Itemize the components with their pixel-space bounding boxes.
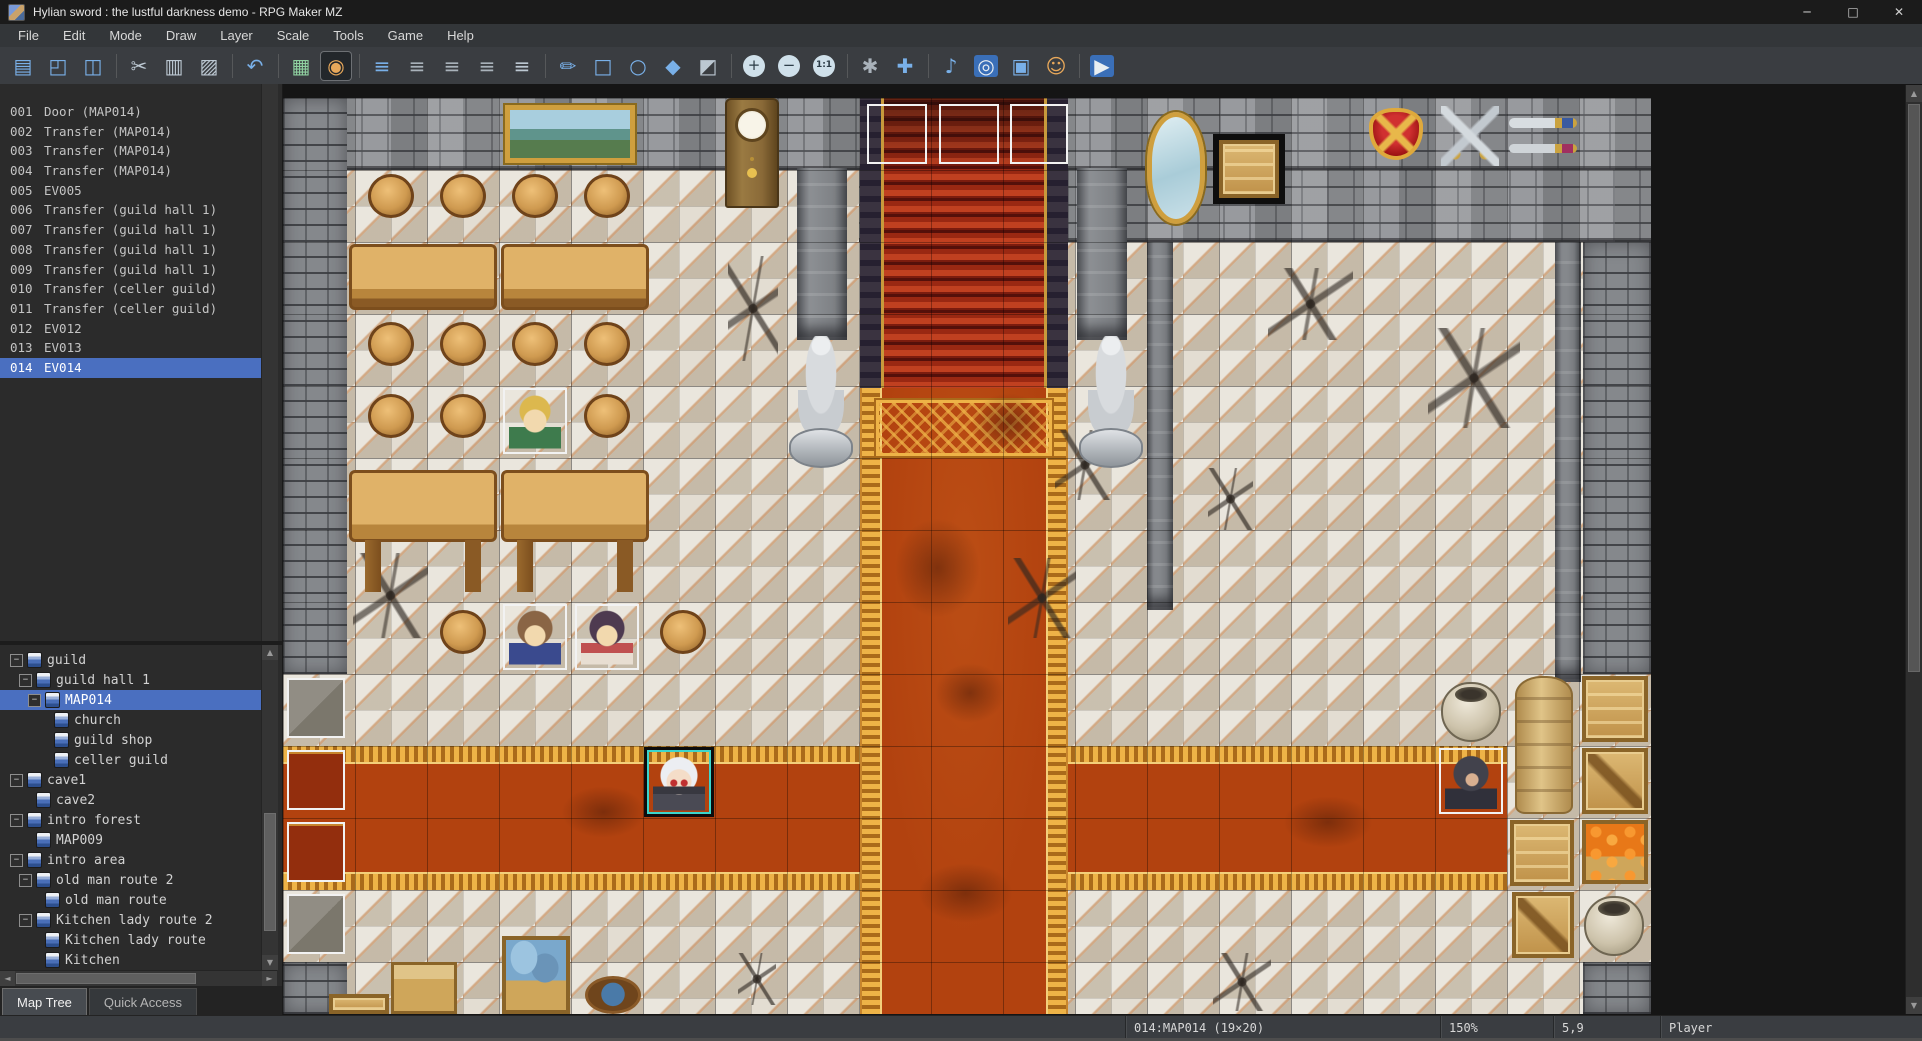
plugin-manager-button[interactable]: ✚ xyxy=(890,52,920,80)
map-file-icon xyxy=(36,872,51,888)
carpet-stain xyxy=(935,663,1005,723)
stool xyxy=(584,394,630,438)
carpet-stain xyxy=(1283,796,1373,848)
playtest-button[interactable]: ▶ xyxy=(1087,52,1117,80)
stool xyxy=(368,174,414,218)
scroll-thumb[interactable] xyxy=(264,813,276,931)
layer-auto-button[interactable]: ≡ xyxy=(367,52,397,80)
tab-quick-access[interactable]: Quick Access xyxy=(89,988,197,1015)
sound-test-icon: ♪ xyxy=(945,56,958,76)
layer-2-button[interactable]: ≡ xyxy=(437,52,467,80)
tree-item-old-man-route[interactable]: −old man route xyxy=(0,890,261,910)
crate xyxy=(1582,676,1648,742)
map-file-icon xyxy=(36,912,51,928)
window-controls: ─ □ ✕ xyxy=(1784,0,1922,24)
menu-edit[interactable]: Edit xyxy=(51,28,97,43)
event-searcher-icon: ◎ xyxy=(974,55,998,77)
layer-1-icon: ≡ xyxy=(409,56,426,76)
scroll-thumb[interactable] xyxy=(1908,104,1920,672)
status-mode: Player xyxy=(1660,1016,1922,1039)
layer-2-icon: ≡ xyxy=(444,56,461,76)
carrot-crate xyxy=(1582,820,1648,884)
maximize-button[interactable]: □ xyxy=(1830,0,1876,24)
floor-crack xyxy=(1208,468,1253,530)
event-item-008[interactable]: 008Transfer (guild hall 1) xyxy=(0,240,261,260)
layer-auto-icon: ≡ xyxy=(374,56,391,76)
map-file-icon xyxy=(36,792,51,808)
plugin-manager-icon: ✚ xyxy=(897,56,914,76)
save-project-icon: ◫ xyxy=(84,56,103,76)
stool xyxy=(584,322,630,366)
stool xyxy=(368,394,414,438)
stool xyxy=(512,174,558,218)
event-item-002[interactable]: 002Transfer (MAP014) xyxy=(0,122,261,142)
status-spacer xyxy=(0,1016,1125,1039)
scroll-thumb[interactable] xyxy=(16,973,196,984)
new-project-button[interactable]: ▤ xyxy=(8,52,38,80)
tree-item-kitchen-lady-route[interactable]: −Kitchen lady route xyxy=(0,930,261,950)
floor-crack xyxy=(728,256,778,361)
wood-chest xyxy=(391,962,457,1014)
cut-button[interactable]: ✂ xyxy=(124,52,154,80)
event-item-004[interactable]: 004Transfer (MAP014) xyxy=(0,161,261,181)
ellipse-tool-button[interactable]: ○ xyxy=(623,52,653,80)
map-tree-hscrollbar[interactable]: ◄ ► xyxy=(0,970,277,986)
tab-map-tree[interactable]: Map Tree xyxy=(2,988,87,1015)
map-mode-button[interactable]: ▦ xyxy=(286,52,316,80)
tree-item-map009[interactable]: −MAP009 xyxy=(0,830,261,850)
map-file-icon xyxy=(54,712,69,728)
toolbar-separator xyxy=(731,54,732,78)
sidebar: 001Door (MAP014)002Transfer (MAP014)003T… xyxy=(0,84,283,1015)
event-box[interactable] xyxy=(287,750,345,810)
map-file-icon xyxy=(45,692,60,708)
crate xyxy=(1510,820,1574,886)
event-item-011[interactable]: 011Transfer (celler guild) xyxy=(0,299,261,319)
toolbar: ▤◰◫✂▥▨↶▦◉≡≡≡≡≡✏□○◆◩+−1:1✱✚♪◎▣☺▶ xyxy=(0,47,1922,85)
statue-left xyxy=(787,336,855,468)
floor-crack xyxy=(1268,268,1353,340)
toolbar-separator xyxy=(116,54,117,78)
stool xyxy=(440,322,486,366)
water-bucket xyxy=(585,976,641,1014)
sound-test-button[interactable]: ♪ xyxy=(936,52,966,80)
grandfather-clock xyxy=(725,98,779,208)
map-file-icon xyxy=(45,892,60,908)
character-generator-icon: ☺ xyxy=(1046,56,1067,76)
event-item-005[interactable]: 005EV005 xyxy=(0,181,261,201)
event-box[interactable] xyxy=(1010,104,1068,164)
stool xyxy=(584,174,630,218)
crate xyxy=(1582,748,1648,814)
carpet-stain xyxy=(561,786,646,838)
status-map-info: 014:MAP014 (19×20) xyxy=(1125,1016,1440,1039)
scroll-up-icon[interactable]: ▲ xyxy=(1906,85,1922,102)
event-box[interactable] xyxy=(867,104,927,164)
floor-crack xyxy=(738,953,776,1005)
toolbar-separator xyxy=(232,54,233,78)
long-table xyxy=(349,470,497,596)
event-item-010[interactable]: 010Transfer (celler guild) xyxy=(0,279,261,299)
undo-button[interactable]: ↶ xyxy=(240,52,270,80)
scroll-left-icon[interactable]: ◄ xyxy=(0,971,15,986)
paste-icon: ▨ xyxy=(200,56,219,76)
new-project-icon: ▤ xyxy=(14,56,33,76)
scroll-up-icon[interactable]: ▲ xyxy=(262,645,278,660)
map-tree-vscrollbar[interactable]: ▲ ▼ xyxy=(261,645,278,970)
tree-item-kitchen[interactable]: −Kitchen xyxy=(0,950,261,970)
char-npc-dark xyxy=(581,606,633,668)
map-file-icon xyxy=(45,952,60,968)
tree-item-guild-shop[interactable]: −guild shop xyxy=(0,730,261,750)
tree-item-cave2[interactable]: −cave2 xyxy=(0,790,261,810)
status-coords: 5,9 xyxy=(1553,1016,1660,1039)
resource-manager-icon: ▣ xyxy=(1012,56,1031,76)
shadow-pen-tool-icon: ◩ xyxy=(699,56,718,76)
main-area: 001Door (MAP014)002Transfer (MAP014)003T… xyxy=(0,84,1922,1015)
tree-item-map014[interactable]: −MAP014 xyxy=(0,690,261,710)
event-item-003[interactable]: 003Transfer (MAP014) xyxy=(0,141,261,161)
char-hooded xyxy=(1445,750,1497,812)
event-item-001[interactable]: 001Door (MAP014) xyxy=(0,102,261,122)
sidebar-tabbar: Map TreeQuick Access xyxy=(0,986,282,1015)
event-item-014[interactable]: 014EV014 xyxy=(0,358,261,378)
long-table xyxy=(501,470,649,596)
event-box[interactable] xyxy=(287,678,345,738)
stool xyxy=(440,394,486,438)
database-button[interactable]: ✱ xyxy=(855,52,885,80)
cut-icon: ✂ xyxy=(131,56,148,76)
zoom-out-button[interactable]: − xyxy=(774,52,804,80)
paste-button[interactable]: ▨ xyxy=(194,52,224,80)
tree-expander-icon[interactable]: − xyxy=(10,774,23,787)
stool xyxy=(512,322,558,366)
tree-expander-icon[interactable]: − xyxy=(19,914,32,927)
map-file-icon xyxy=(27,812,42,828)
menu-help[interactable]: Help xyxy=(435,28,486,43)
char-hero xyxy=(509,390,561,452)
copy-button[interactable]: ▥ xyxy=(159,52,189,80)
small-crate xyxy=(329,994,389,1014)
scroll-right-icon[interactable]: ► xyxy=(262,971,277,986)
minimize-button[interactable]: ─ xyxy=(1784,0,1830,24)
pencil-tool-button[interactable]: ✏ xyxy=(553,52,583,80)
ellipse-tool-icon: ○ xyxy=(629,56,646,76)
wall-mirror xyxy=(1147,112,1205,224)
toolbar-separator xyxy=(359,54,360,78)
tree-expander-icon[interactable]: − xyxy=(10,654,23,667)
toolbar-separator xyxy=(928,54,929,78)
toolbar-separator xyxy=(847,54,848,78)
char-white-hair xyxy=(653,752,705,814)
event-item-012[interactable]: 012EV012 xyxy=(0,319,261,339)
tree-expander-icon[interactable]: − xyxy=(19,874,32,887)
tree-item-guild[interactable]: −guild xyxy=(0,650,261,670)
menu-scale[interactable]: Scale xyxy=(265,28,322,43)
tree-item-intro-area[interactable]: −intro area xyxy=(0,850,261,870)
menu-file[interactable]: File xyxy=(6,28,51,43)
open-project-button[interactable]: ◰ xyxy=(43,52,73,80)
long-table xyxy=(349,244,497,310)
rectangle-tool-icon: □ xyxy=(594,56,613,76)
flood-fill-tool-button[interactable]: ◆ xyxy=(658,52,688,80)
map-file-icon xyxy=(27,852,42,868)
event-list: 001Door (MAP014)002Transfer (MAP014)003T… xyxy=(0,84,261,641)
close-button[interactable]: ✕ xyxy=(1876,0,1922,24)
open-project-icon: ◰ xyxy=(49,56,68,76)
layer-3-icon: ≡ xyxy=(479,56,496,76)
tree-item-cave1[interactable]: −cave1 xyxy=(0,770,261,790)
zoom-out-icon: − xyxy=(778,55,800,77)
title-bar: Hylian sword : the lustful darkness demo… xyxy=(0,0,1922,24)
floor-crack xyxy=(1213,953,1271,1011)
menu-layer[interactable]: Layer xyxy=(208,28,265,43)
pot xyxy=(1441,682,1501,742)
map-vscrollbar[interactable]: ▲ ▼ xyxy=(1905,85,1922,1014)
map-file-icon xyxy=(27,772,42,788)
event-mode-icon: ◉ xyxy=(327,56,344,76)
event-box[interactable] xyxy=(939,104,999,164)
stool xyxy=(660,610,706,654)
event-list-scrollbar[interactable] xyxy=(261,84,278,641)
playtest-icon: ▶ xyxy=(1090,55,1114,77)
map-mode-icon: ▦ xyxy=(292,56,311,76)
rpg-maker-window: Hylian sword : the lustful darkness demo… xyxy=(0,0,1922,1041)
tree-item-church[interactable]: −church xyxy=(0,710,261,730)
status-bar: 014:MAP014 (19×20) 150% 5,9 Player xyxy=(0,1015,1922,1039)
map-viewport[interactable] xyxy=(283,98,1651,1014)
layer-1-button[interactable]: ≡ xyxy=(402,52,432,80)
map-file-icon xyxy=(36,832,51,848)
event-item-009[interactable]: 009Transfer (guild hall 1) xyxy=(0,260,261,280)
sword-pair xyxy=(1509,110,1577,164)
map-file-icon xyxy=(36,672,51,688)
stool xyxy=(368,322,414,366)
grain-sack xyxy=(1515,676,1573,814)
fish-crate xyxy=(502,936,570,1014)
rectangle-tool-button[interactable]: □ xyxy=(588,52,618,80)
tree-item-old-man-route-2[interactable]: −old man route 2 xyxy=(0,870,261,890)
menu-tools[interactable]: Tools xyxy=(321,28,375,43)
tree-expander-icon[interactable]: − xyxy=(28,694,41,707)
copy-icon: ▥ xyxy=(165,56,184,76)
zoom-actual-button[interactable]: 1:1 xyxy=(809,52,839,80)
map-file-icon xyxy=(27,652,42,668)
menu-bar: FileEditModeDrawLayerScaleToolsGameHelp xyxy=(0,24,1922,48)
scroll-down-icon[interactable]: ▼ xyxy=(262,955,278,970)
tree-item-guild-hall-1[interactable]: −guild hall 1 xyxy=(0,670,261,690)
menu-mode[interactable]: Mode xyxy=(97,28,154,43)
floor-crack xyxy=(1008,558,1076,638)
carpet-stain xyxy=(895,518,980,618)
long-table xyxy=(501,244,649,310)
event-item-006[interactable]: 006Transfer (guild hall 1) xyxy=(0,200,261,220)
layer-4-button[interactable]: ≡ xyxy=(507,52,537,80)
event-item-013[interactable]: 013EV013 xyxy=(0,338,261,358)
stool xyxy=(440,174,486,218)
pencil-tool-icon: ✏ xyxy=(560,56,577,76)
character-generator-button[interactable]: ☺ xyxy=(1041,52,1071,80)
map-file-icon xyxy=(54,752,69,768)
database-icon: ✱ xyxy=(862,56,879,76)
toolbar-separator xyxy=(545,54,546,78)
status-zoom-level: 150% xyxy=(1440,1016,1553,1039)
event-mode-button[interactable]: ◉ xyxy=(321,52,351,80)
event-searcher-button[interactable]: ◎ xyxy=(971,52,1001,80)
shadow-pen-tool-button[interactable]: ◩ xyxy=(693,52,723,80)
tree-item-intro-forest[interactable]: −intro forest xyxy=(0,810,261,830)
map-file-icon xyxy=(54,732,69,748)
wall-crate xyxy=(1219,140,1279,198)
layer-3-button[interactable]: ≡ xyxy=(472,52,502,80)
toolbar-separator xyxy=(1079,54,1080,78)
tree-item-celler-guild[interactable]: −celler guild xyxy=(0,750,261,770)
zoom-in-button[interactable]: + xyxy=(739,52,769,80)
wall-painting xyxy=(505,105,635,163)
resource-manager-button[interactable]: ▣ xyxy=(1006,52,1036,80)
map-tree: −guild−guild hall 1−MAP014−church−guild … xyxy=(0,645,261,970)
toolbar-separator xyxy=(278,54,279,78)
event-box[interactable] xyxy=(287,894,345,954)
crossed-swords xyxy=(1441,106,1499,166)
tree-expander-icon[interactable]: − xyxy=(19,674,32,687)
stool xyxy=(440,610,486,654)
floor-crack xyxy=(1428,328,1520,428)
map-canvas-area: ▲ ▼ xyxy=(283,84,1922,1015)
app-icon xyxy=(8,4,25,21)
save-project-button[interactable]: ◫ xyxy=(78,52,108,80)
statue-right xyxy=(1077,336,1145,468)
event-item-007[interactable]: 007Transfer (guild hall 1) xyxy=(0,220,261,240)
menu-draw[interactable]: Draw xyxy=(154,28,208,43)
crate xyxy=(1512,892,1574,958)
zoom-actual-icon: 1:1 xyxy=(813,55,835,77)
undo-icon: ↶ xyxy=(247,56,264,76)
layer-4-icon: ≡ xyxy=(514,56,531,76)
tree-expander-icon[interactable]: − xyxy=(10,814,23,827)
event-box[interactable] xyxy=(287,822,345,882)
scroll-down-icon[interactable]: ▼ xyxy=(1906,997,1922,1014)
flood-fill-tool-icon: ◆ xyxy=(665,56,680,76)
pot xyxy=(1584,896,1644,956)
carpet-stain xyxy=(971,393,1046,453)
map-file-icon xyxy=(45,932,60,948)
window-title: Hylian sword : the lustful darkness demo… xyxy=(33,5,342,19)
carpet-stain xyxy=(918,863,1013,923)
menu-game[interactable]: Game xyxy=(376,28,435,43)
char-npc-brown xyxy=(509,606,561,668)
zoom-in-icon: + xyxy=(743,55,765,77)
tree-expander-icon[interactable]: − xyxy=(10,854,23,867)
tree-item-kitchen-lady-route-2[interactable]: −Kitchen lady route 2 xyxy=(0,910,261,930)
